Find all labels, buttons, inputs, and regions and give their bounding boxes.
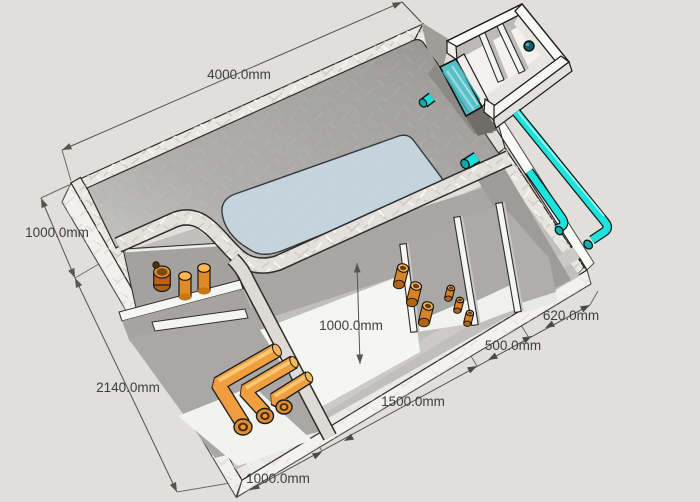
svg-text:1000.0mm: 1000.0mm xyxy=(246,471,310,486)
svg-text:2140.0mm: 2140.0mm xyxy=(96,380,160,395)
svg-text:1500.0mm: 1500.0mm xyxy=(381,394,445,409)
svg-text:4000.0mm: 4000.0mm xyxy=(207,67,271,82)
svg-text:1000.0mm: 1000.0mm xyxy=(25,225,89,240)
svg-text:500.0mm: 500.0mm xyxy=(485,338,541,353)
svg-text:1000.0mm: 1000.0mm xyxy=(319,318,383,333)
svg-text:620.0mm: 620.0mm xyxy=(543,308,599,323)
